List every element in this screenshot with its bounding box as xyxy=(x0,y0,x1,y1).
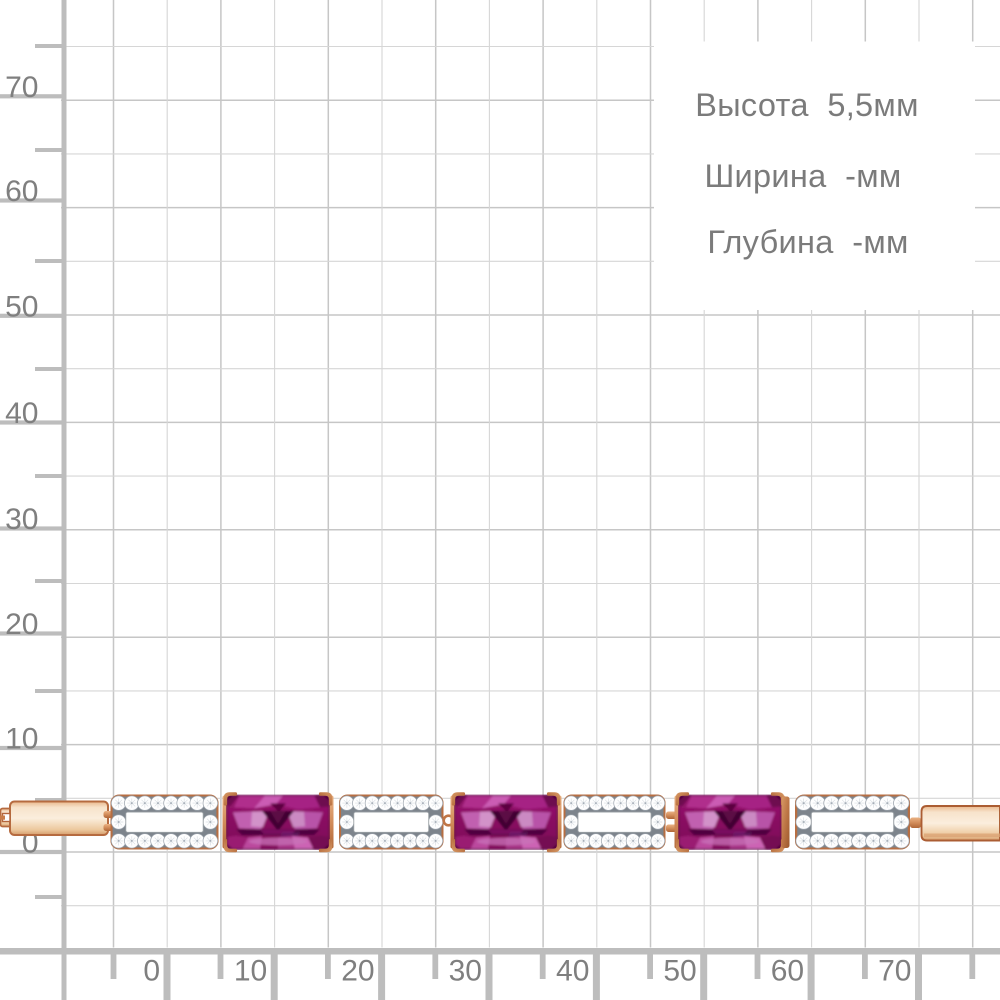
svg-text:10: 10 xyxy=(5,723,38,756)
svg-text:30: 30 xyxy=(5,503,38,536)
svg-text:10: 10 xyxy=(234,955,267,988)
svg-text:40: 40 xyxy=(5,397,38,430)
svg-text:20: 20 xyxy=(5,608,38,641)
svg-text:Ширина -мм: Ширина -мм xyxy=(704,158,901,194)
svg-text:60: 60 xyxy=(5,175,38,208)
svg-text:0: 0 xyxy=(143,955,160,988)
svg-text:Глубина -мм: Глубина -мм xyxy=(707,224,908,260)
svg-text:70: 70 xyxy=(5,71,38,104)
svg-text:70: 70 xyxy=(878,955,911,988)
svg-text:40: 40 xyxy=(556,955,589,988)
svg-text:Высота 5,5мм: Высота 5,5мм xyxy=(695,87,918,123)
svg-text:20: 20 xyxy=(341,955,374,988)
svg-text:30: 30 xyxy=(449,955,482,988)
svg-text:50: 50 xyxy=(5,290,38,323)
svg-text:60: 60 xyxy=(771,955,804,988)
svg-text:50: 50 xyxy=(663,955,696,988)
